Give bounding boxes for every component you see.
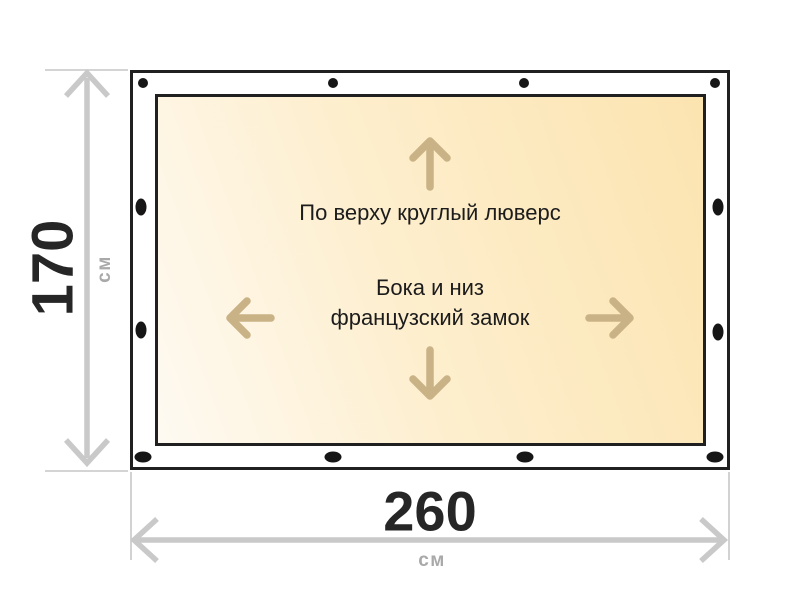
grommet-bottom-3 <box>517 452 534 463</box>
width-unit-label: см <box>418 550 446 572</box>
sides-bottom-note: Бока и низ французский замок <box>331 273 530 333</box>
height-value-label: 170 <box>20 220 87 317</box>
sides-bottom-note-line2: французский замок <box>331 303 530 333</box>
grommet-top-2 <box>328 78 338 88</box>
top-edge-note: По верху круглый люверс <box>299 198 560 228</box>
grommet-left-2 <box>136 322 147 339</box>
sides-bottom-note-line1: Бока и низ <box>331 273 530 303</box>
grommet-left-1 <box>136 199 147 216</box>
grommet-top-4 <box>710 78 720 88</box>
width-value-label: 260 <box>383 479 476 544</box>
height-unit-label: см <box>94 255 116 283</box>
grommet-bottom-1 <box>135 452 152 463</box>
grommet-top-1 <box>138 78 148 88</box>
tarp-dimension-diagram: По верху круглый люверс Бока и низ франц… <box>0 0 800 600</box>
tarp-inner-panel <box>155 94 706 446</box>
grommet-top-3 <box>519 78 529 88</box>
grommet-right-1 <box>713 199 724 216</box>
grommet-right-2 <box>713 324 724 341</box>
grommet-bottom-4 <box>707 452 724 463</box>
grommet-bottom-2 <box>325 452 342 463</box>
